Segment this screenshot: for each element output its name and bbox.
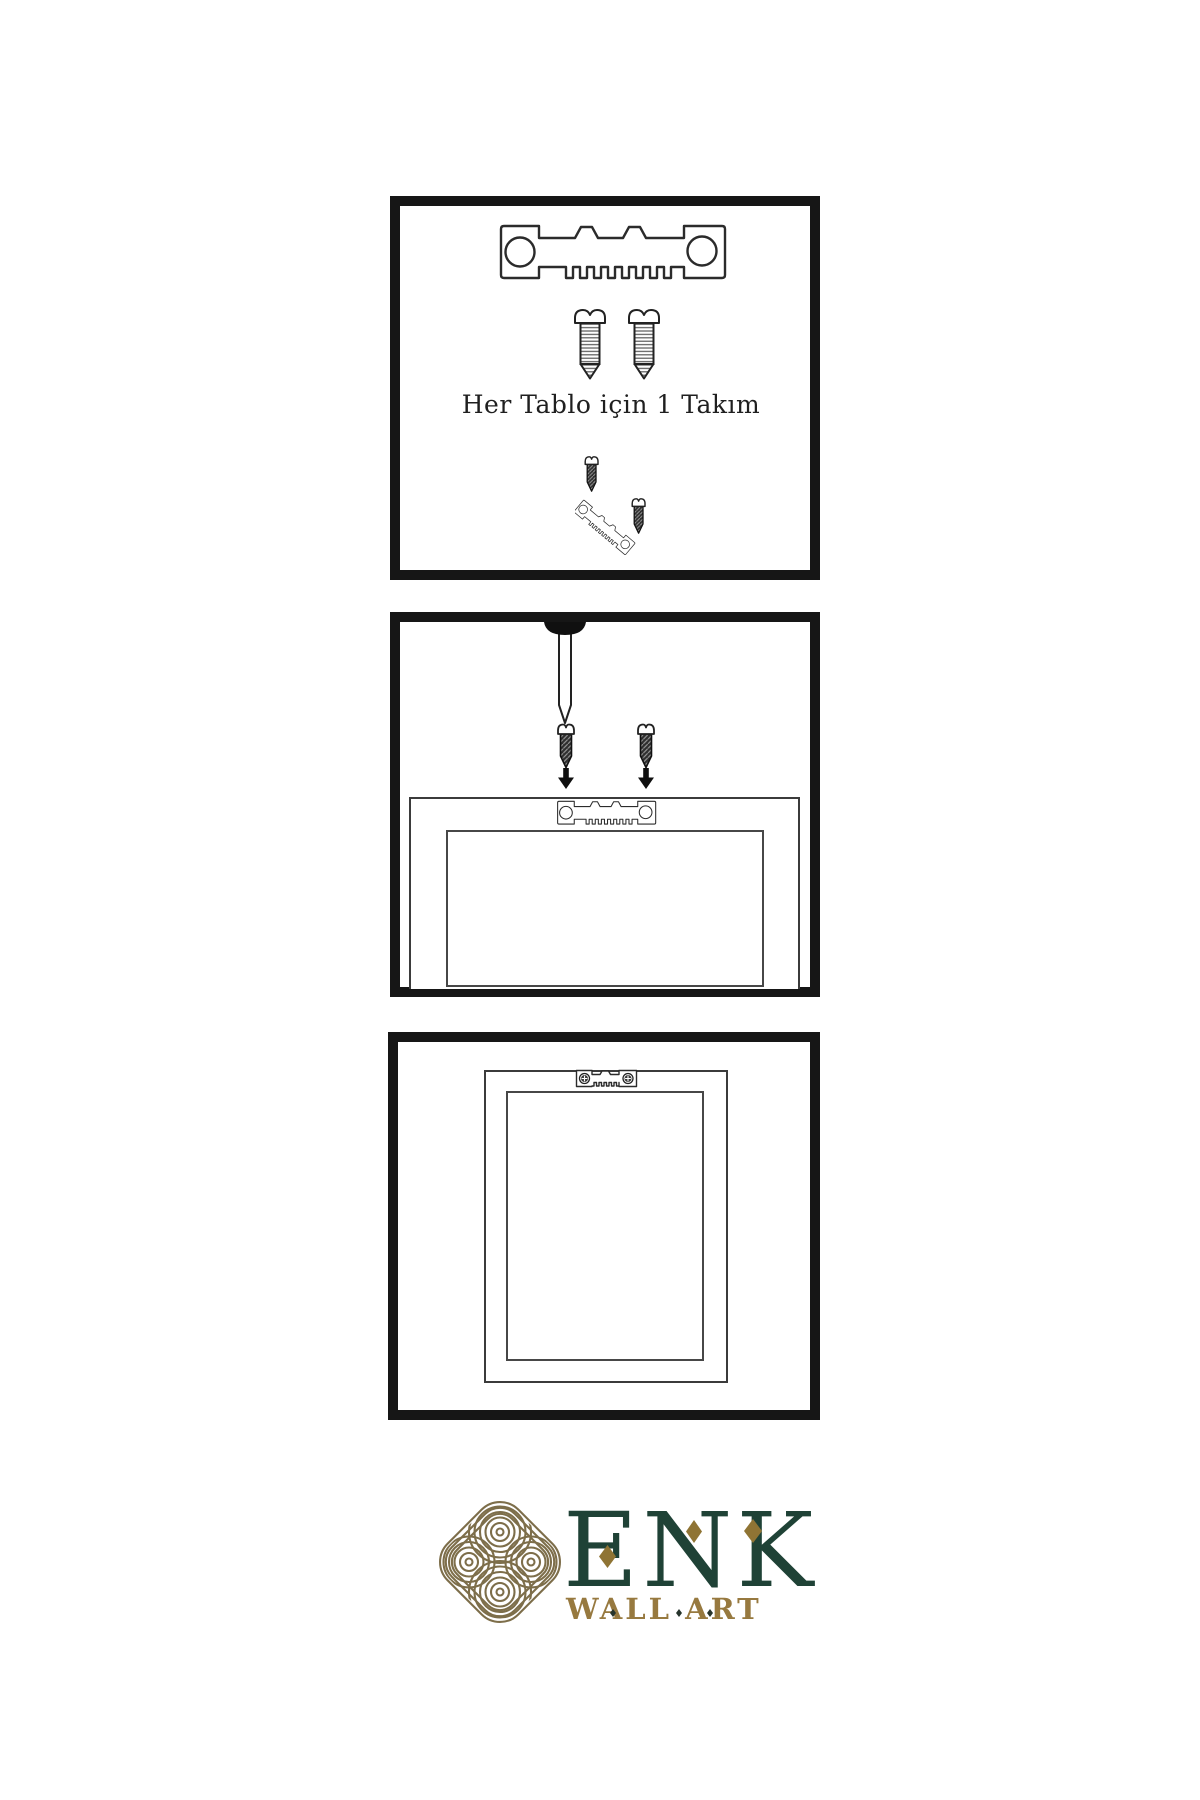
instruction-sheet: Her Tablo için 1 Takım (0, 0, 1200, 1800)
sawtooth-hanger-icon (495, 223, 728, 281)
arrow-down-icon (638, 768, 654, 789)
mounted-hanger-icon (575, 1069, 638, 1088)
step-2-panel (390, 612, 820, 997)
step-1-panel: Her Tablo için 1 Takım (390, 196, 820, 580)
logo-wordmark: ENK (563, 1500, 817, 1603)
screw-and-hanger-angled-icon (575, 450, 667, 560)
wall-nail-icon (542, 622, 588, 727)
kit-caption: Her Tablo için 1 Takım (400, 390, 810, 419)
screw-icon (572, 306, 608, 380)
screw-icon (626, 306, 662, 380)
arrow-down-icon (558, 768, 574, 789)
sawtooth-hanger-small-icon (555, 800, 657, 825)
screw-icon (634, 721, 658, 771)
step-3-panel (388, 1032, 820, 1420)
logo-knot-icon (437, 1494, 563, 1630)
logo-tagline: WALL ART (566, 1595, 762, 1624)
frame-inner-outline (446, 830, 764, 987)
screw-icon (554, 721, 578, 771)
frame-inner-outline (506, 1091, 704, 1361)
